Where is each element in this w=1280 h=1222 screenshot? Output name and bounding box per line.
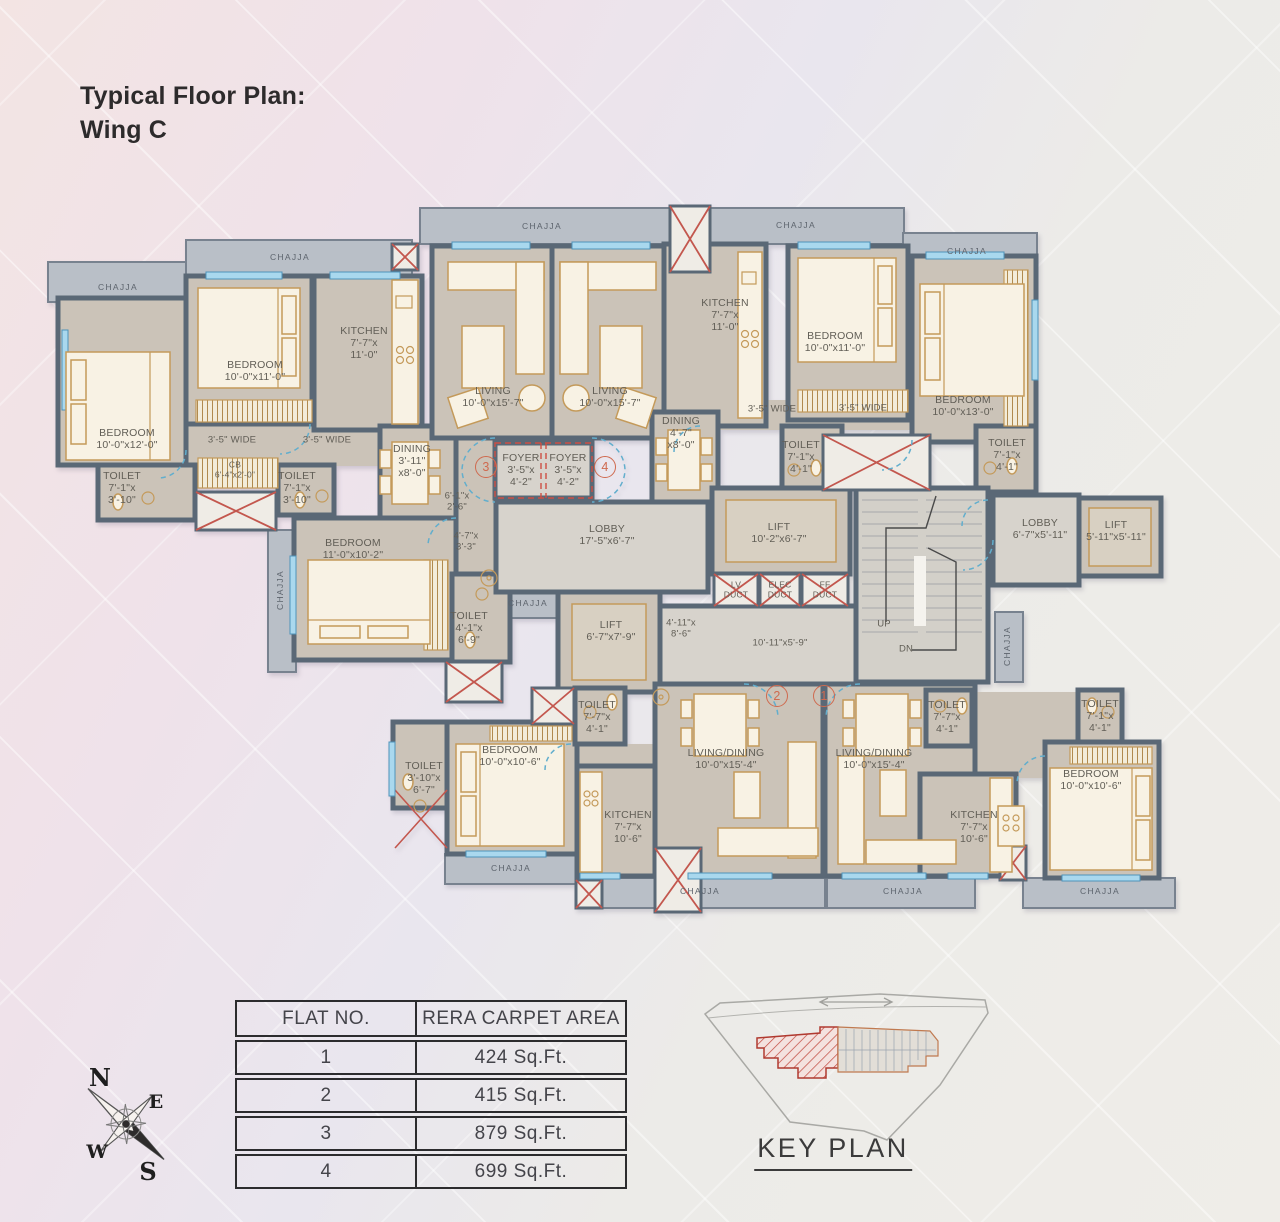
key-plan-map — [0, 0, 1280, 1222]
road-arrow — [820, 998, 892, 1006]
key-plan-caption: KEY PLAN — [754, 1133, 912, 1171]
floor-plan-page: Typical Floor Plan:Wing C — [0, 0, 1280, 1222]
wing-c-highlight — [757, 1027, 838, 1078]
building-outline — [838, 1027, 938, 1072]
